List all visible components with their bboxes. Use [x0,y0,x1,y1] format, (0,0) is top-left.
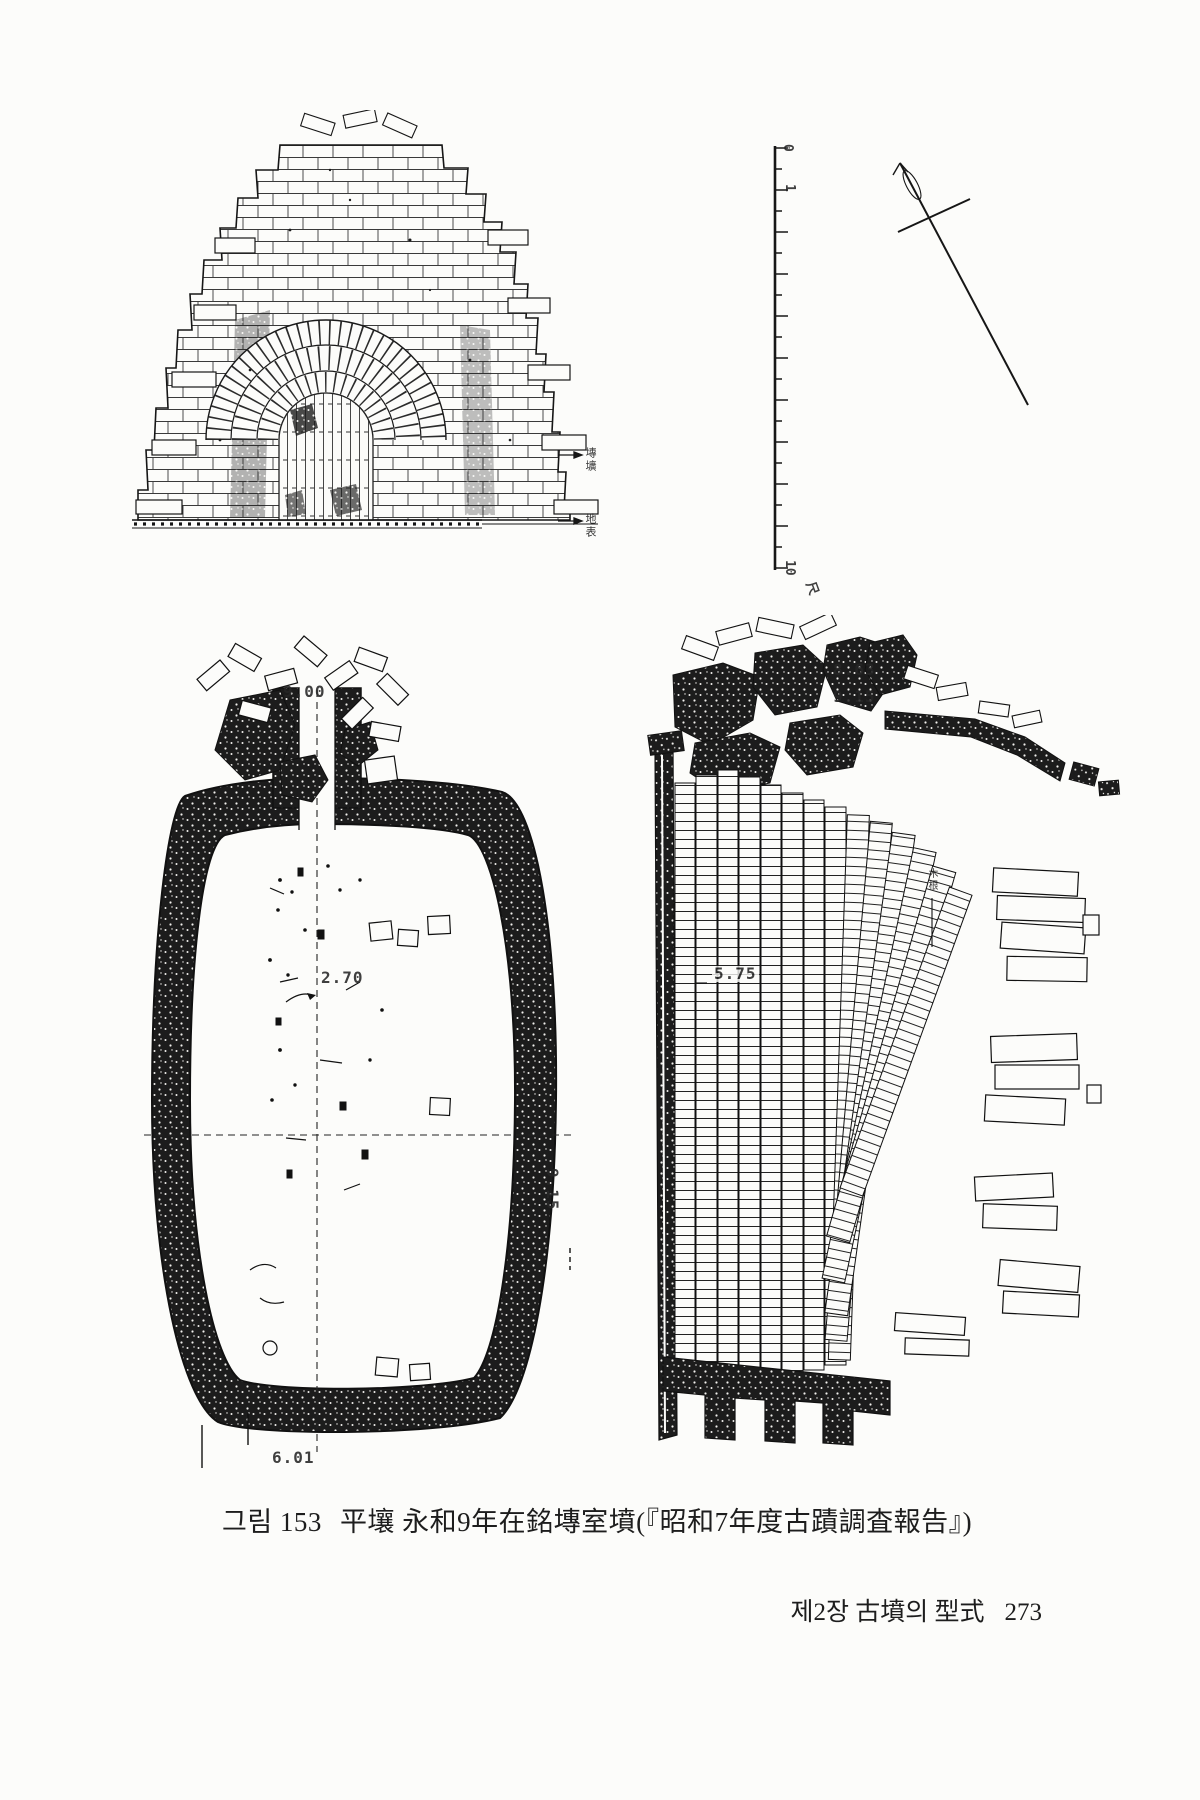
elevation-annotation-lower: 地表 [585,513,596,539]
loose-top-bricks [301,110,417,138]
elevation-annotation-upper: 塼壙 [585,447,596,473]
figure-caption-title: 平壤 永和9年在銘塼室墳(『昭和7年度古蹟調査報告』) [340,1507,972,1537]
plan-drawing [130,630,590,1510]
scale-tick-10: 10 [783,560,796,576]
elevation-drawing [130,110,660,570]
toothed-wall [663,1357,890,1445]
footer-page-number: 273 [1005,1599,1043,1626]
chamber-wall [152,778,556,1432]
north-arrow [893,163,1028,405]
ground-line [132,520,598,528]
page-footer: 제2장 古墳의 型式273 [0,1592,1042,1628]
elevation-svg [130,110,660,570]
plan-dim-inner: 2.70 [321,970,364,986]
scale-bar [775,146,788,570]
blocked-doorway [279,393,373,520]
figure-caption-label: 그림 153 [222,1507,322,1537]
section-dim-inner: 5.75 [712,966,759,982]
section-dim-2: 9.15 [833,689,876,705]
plan-dim-top: 9.00 [283,684,326,700]
scale-and-north [740,100,1100,620]
dim-leader [286,993,316,1002]
scanned-book-page: 塼壙 地表 0 1 10 尺 [0,0,1200,1800]
scale-tick-1: 1 [783,184,796,192]
section-drawing [555,615,1135,1495]
section-dim-1: 8.63 [833,662,876,678]
brick-courses [675,770,972,1373]
plan-dim-bottom: 6.01 [272,1450,315,1466]
section-annotation: 木根 [926,868,936,892]
scale-tick-0: 0 [781,144,794,152]
footer-chapter: 제2장 古墳의 型式 [790,1599,984,1626]
collapsed-rubble [673,635,1120,796]
figure-caption: 그림 153平壤 永和9年在銘塼室墳(『昭和7年度古蹟調査報告』) [222,1500,1002,1539]
